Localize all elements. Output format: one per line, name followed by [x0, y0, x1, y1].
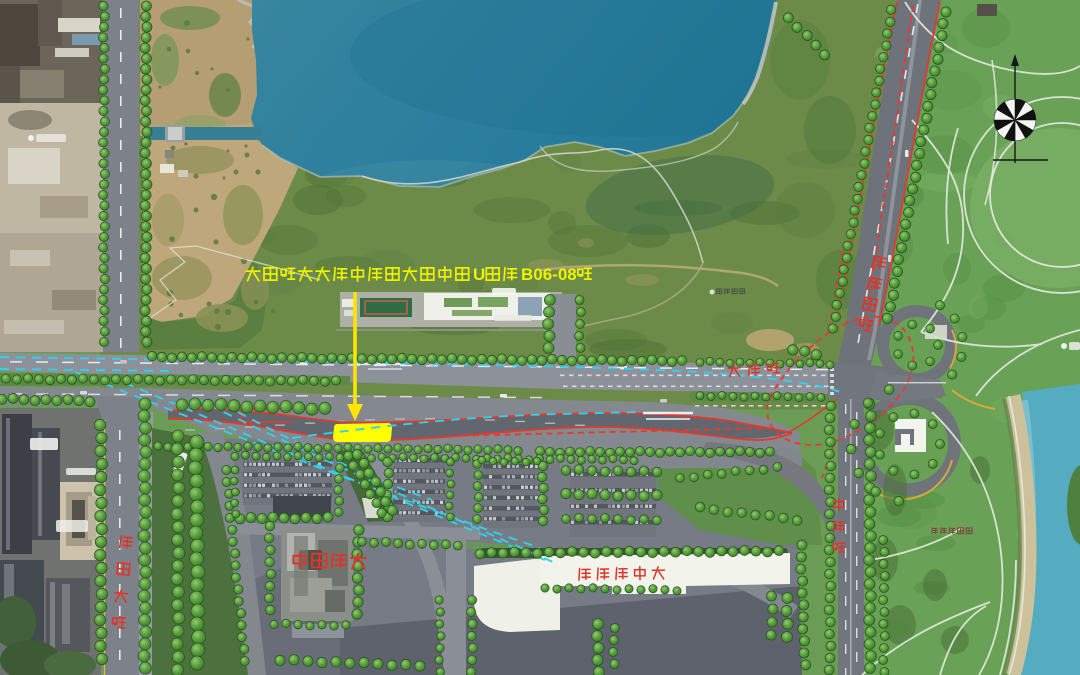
- svg-text:U: U: [473, 265, 485, 284]
- svg-text:B06-08: B06-08: [521, 265, 577, 284]
